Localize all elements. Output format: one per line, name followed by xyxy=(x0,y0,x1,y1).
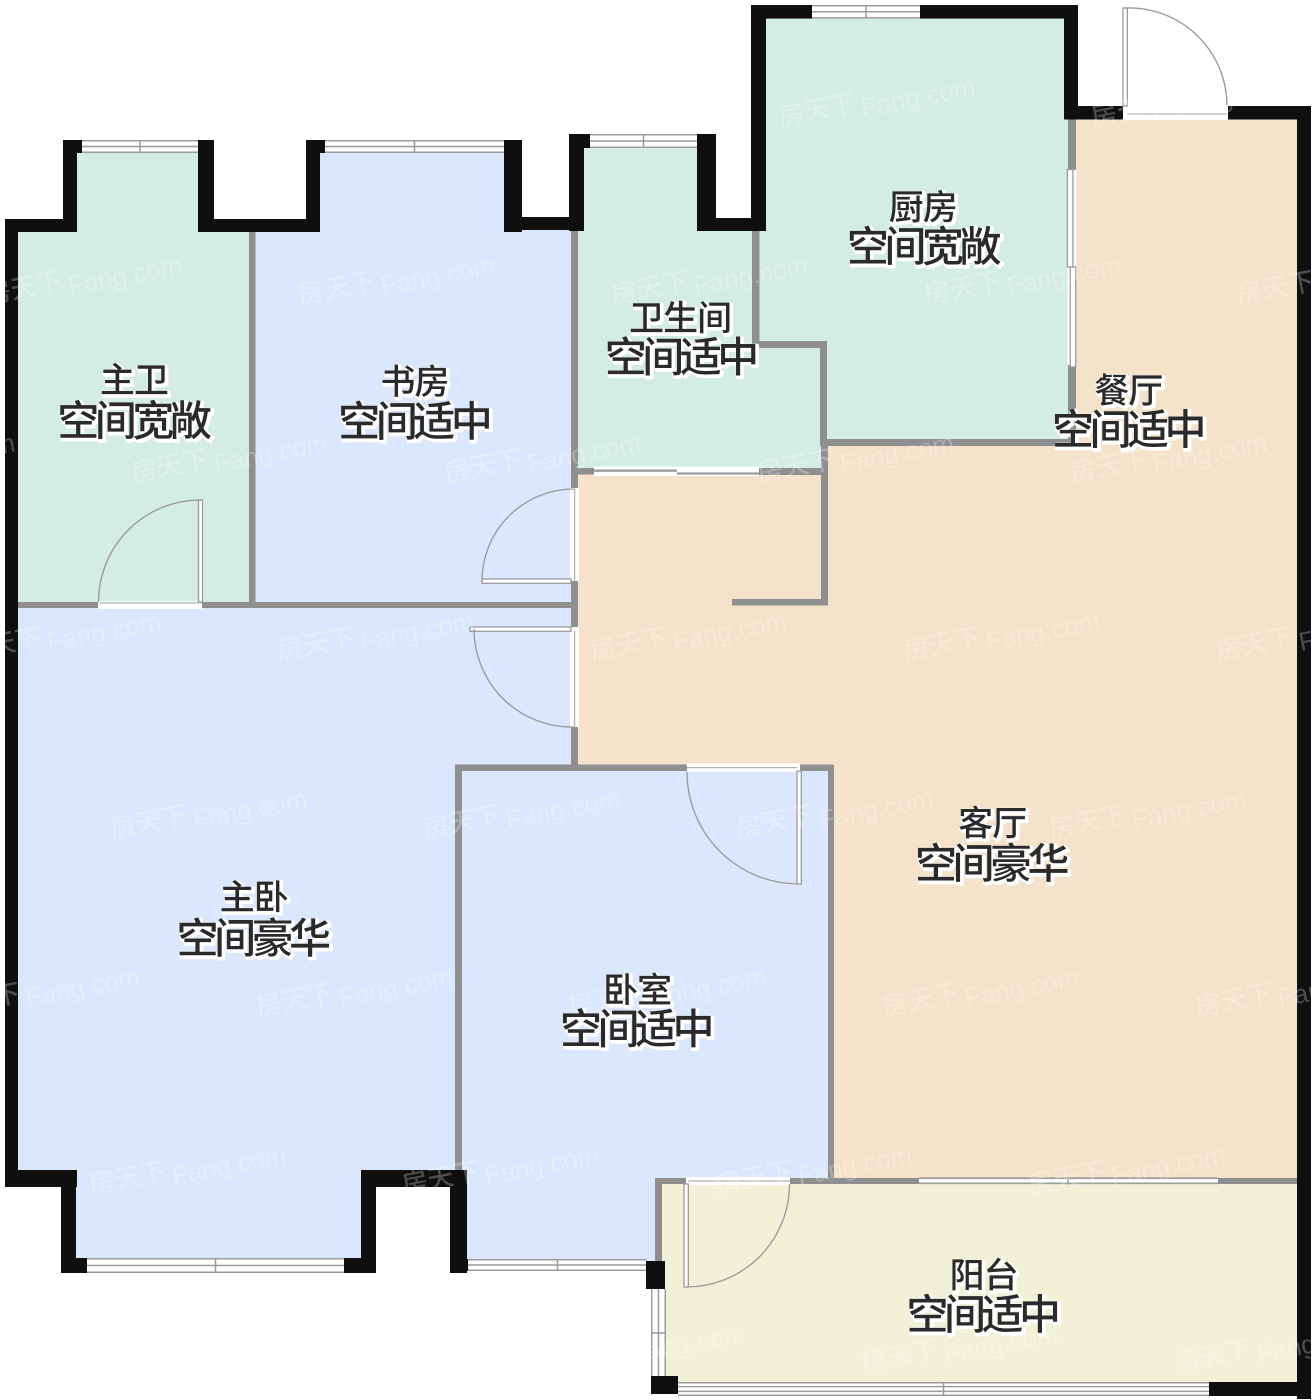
svg-text:Fang.com: Fang.com xyxy=(545,71,664,123)
svg-text:Fang.com: Fang.com xyxy=(0,71,38,123)
svg-text:Fang.com: Fang.com xyxy=(315,1317,434,1369)
svg-text:Fang.com: Fang.com xyxy=(2,1317,121,1369)
svg-text:Fang.com: Fang.com xyxy=(232,71,351,123)
